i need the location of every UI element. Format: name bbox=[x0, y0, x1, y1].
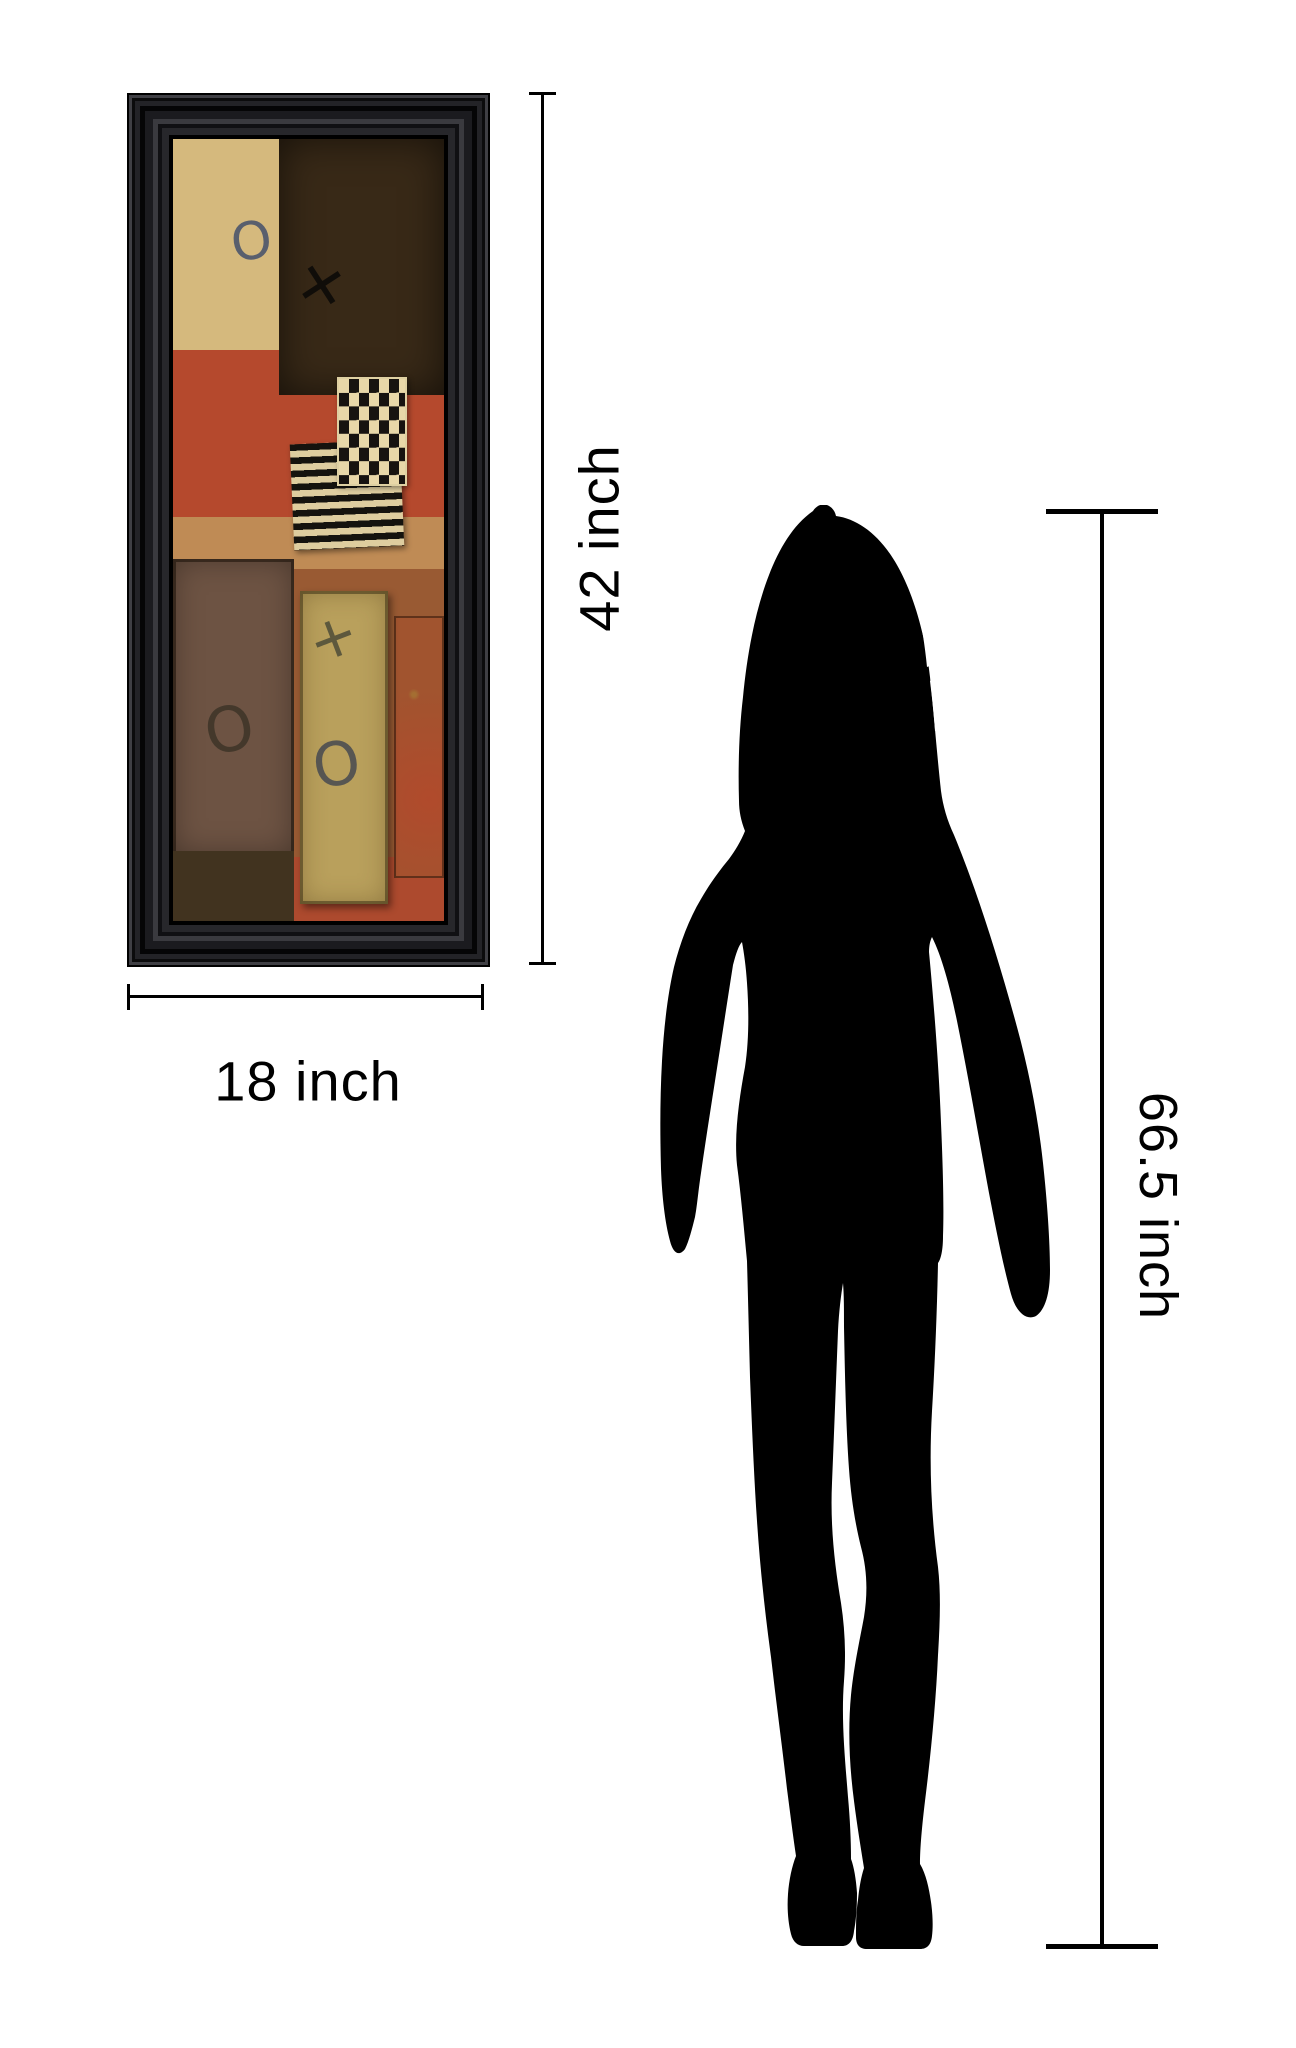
abstract-artwork: O ✕ O ✕ O bbox=[173, 139, 444, 921]
picture-frame: O ✕ O ✕ O bbox=[127, 93, 490, 967]
artwork-width-tick-left bbox=[127, 984, 130, 1010]
art-mark-o-bottom-middle: O bbox=[308, 731, 365, 798]
artwork-height-line bbox=[541, 93, 544, 965]
woman-silhouette bbox=[635, 505, 1055, 1955]
artwork-height-tick-top bbox=[529, 92, 556, 95]
size-comparison-diagram: O ✕ O ✕ O 18 inch 42 inch 66.5 inch bbox=[0, 0, 1296, 2048]
woman-silhouette-path bbox=[660, 505, 1050, 1949]
person-height-tick-top bbox=[1046, 509, 1158, 514]
artwork-width-line bbox=[129, 995, 484, 998]
art-bottom-left-dark-block bbox=[173, 851, 294, 921]
person-height-tick-bottom bbox=[1046, 1944, 1158, 1949]
artwork-height-tick-bottom bbox=[529, 962, 556, 965]
person-height-label: 66.5 inch bbox=[1127, 1092, 1189, 1320]
art-rust-panel bbox=[394, 616, 444, 878]
art-checkerboard-block bbox=[337, 377, 407, 486]
artwork-height-label: 42 inch bbox=[567, 444, 632, 632]
art-mark-o-top-left: O bbox=[228, 213, 276, 270]
person-height-line bbox=[1100, 512, 1104, 1948]
artwork-width-tick-right bbox=[481, 984, 484, 1010]
artwork-width-label: 18 inch bbox=[214, 1049, 402, 1114]
